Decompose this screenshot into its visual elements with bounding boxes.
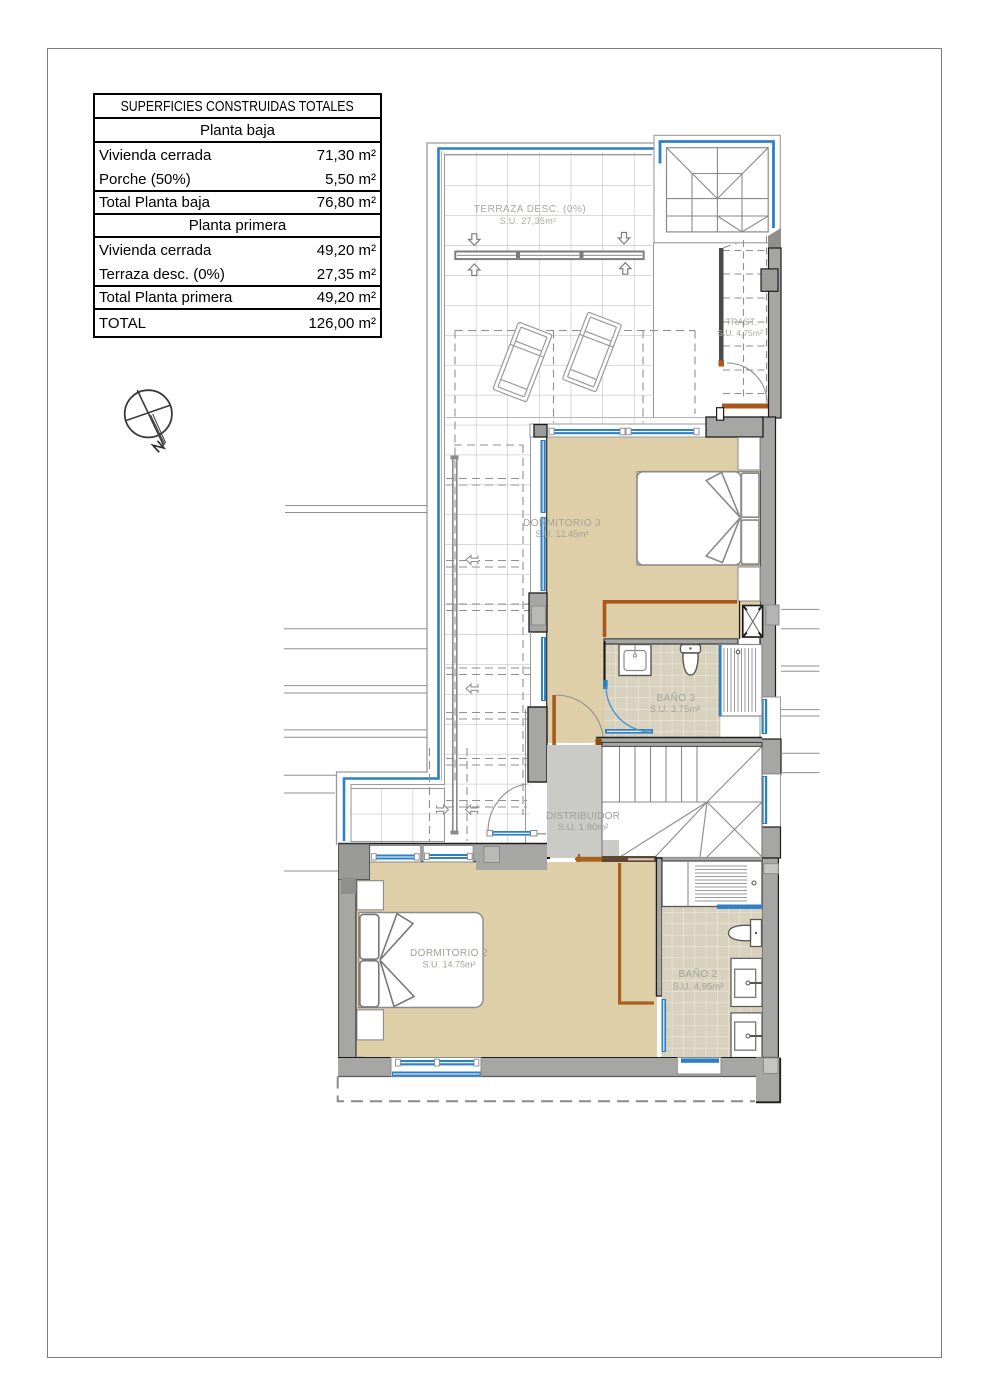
svg-text:DISTRIBUIDOR: DISTRIBUIDOR: [546, 811, 620, 822]
svg-text:DORMITORIO 2: DORMITORIO 2: [410, 948, 488, 959]
svg-text:S.U. 4,95m²: S.U. 4,95m²: [673, 982, 724, 993]
svg-text:DORMITORIO 3: DORMITORIO 3: [523, 518, 601, 529]
svg-text:TERRAZA DESC. (0%): TERRAZA DESC. (0%): [474, 204, 586, 215]
svg-text:S.U. 12.45m²: S.U. 12.45m²: [535, 529, 588, 539]
svg-text:S.U. 14.75m²: S.U. 14.75m²: [422, 960, 475, 970]
svg-text:TRAST.: TRAST.: [725, 317, 756, 327]
svg-text:BAÑO 3: BAÑO 3: [656, 691, 695, 704]
svg-text:S.U. 1.80m²: S.U. 1.80m²: [558, 822, 609, 833]
svg-text:S.U. 3.75m²: S.U. 3.75m²: [650, 704, 701, 715]
svg-text:S.U. 4,75m²: S.U. 4,75m²: [717, 328, 763, 338]
svg-text:S.U. 27,35m²: S.U. 27,35m²: [500, 216, 557, 226]
svg-text:BAÑO 2: BAÑO 2: [678, 967, 717, 980]
